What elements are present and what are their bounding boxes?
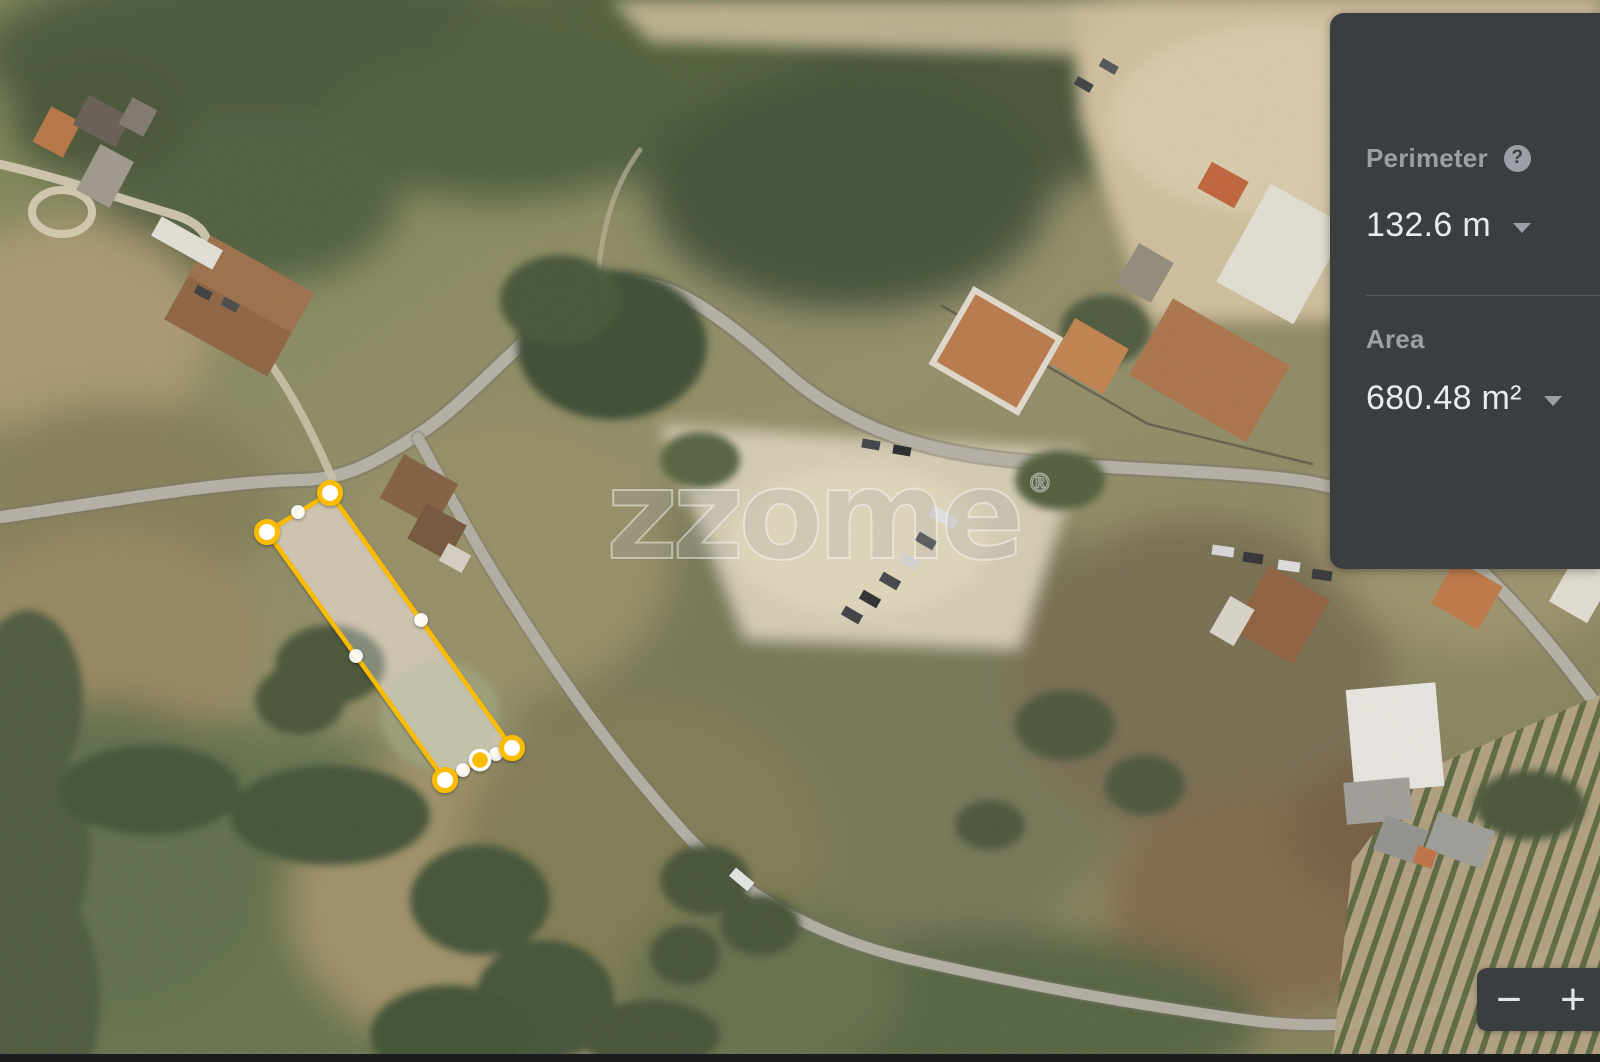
bottom-bar bbox=[0, 1054, 1600, 1062]
area-label: Area bbox=[1366, 324, 1425, 355]
area-value: 680.48 m² bbox=[1366, 379, 1522, 418]
zoom-out-button[interactable]: − bbox=[1477, 970, 1541, 1030]
chevron-down-icon[interactable] bbox=[1544, 396, 1562, 406]
area-value-dropdown[interactable]: 680.48 m² bbox=[1366, 378, 1600, 418]
perimeter-value-dropdown[interactable]: 132.6 m bbox=[1366, 205, 1600, 245]
measurement-panel: Perimeter ? 132.6 m Area 680.48 m² bbox=[1330, 13, 1600, 569]
perimeter-label: Perimeter bbox=[1366, 143, 1488, 174]
help-icon[interactable]: ? bbox=[1504, 145, 1531, 172]
chevron-down-icon[interactable] bbox=[1513, 223, 1531, 233]
divider bbox=[1366, 295, 1600, 296]
zoom-controls: − + bbox=[1477, 968, 1600, 1031]
perimeter-value: 132.6 m bbox=[1366, 206, 1491, 245]
zoom-in-button[interactable]: + bbox=[1541, 970, 1600, 1030]
map-measure-app: zzome® Perimeter ? 132 bbox=[0, 0, 1600, 1062]
